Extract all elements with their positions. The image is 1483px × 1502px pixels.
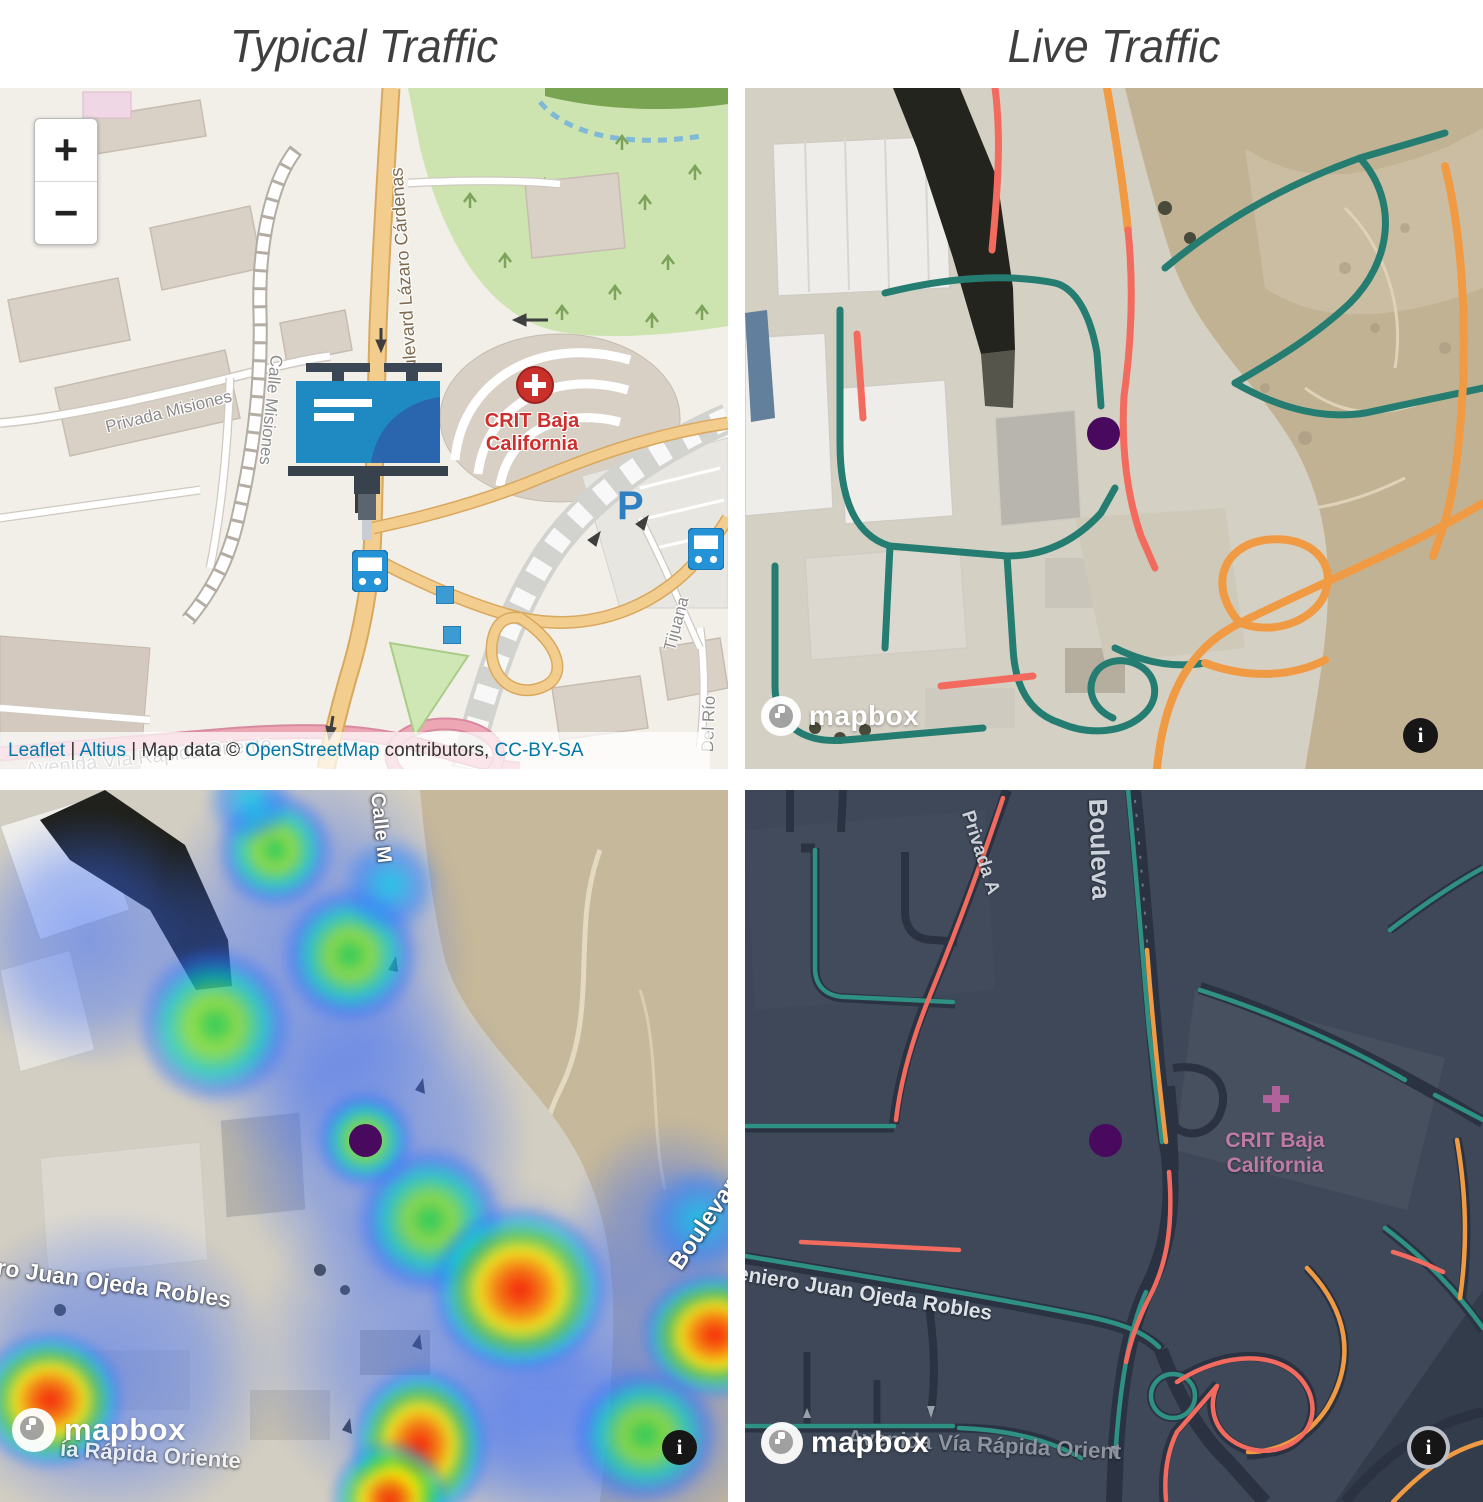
zoom-control: + − xyxy=(34,118,98,245)
map-attribution: Leaflet | Altius | Map data © OpenStreet… xyxy=(0,732,710,769)
altius-link[interactable]: Altius xyxy=(80,740,126,761)
street-label-boulevard: Bouleva xyxy=(1082,798,1117,900)
attribution-info-icon[interactable]: i xyxy=(1407,1426,1450,1469)
leaflet-link[interactable]: Leaflet xyxy=(8,740,65,761)
live-traffic-title: Live Traffic xyxy=(760,6,1468,86)
transit-stop-icon[interactable] xyxy=(436,586,454,604)
location-marker-dot[interactable] xyxy=(1087,417,1120,450)
attrib-contributors-text: contributors, xyxy=(385,740,490,761)
location-marker-dot[interactable] xyxy=(349,1124,382,1157)
mapbox-icon xyxy=(761,696,801,736)
license-link[interactable]: CC-BY-SA xyxy=(495,740,584,761)
mapbox-icon xyxy=(761,1422,803,1464)
live-traffic-map-panel[interactable]: mapbox i xyxy=(745,88,1483,769)
mapbox-wordmark: mapbox xyxy=(64,1412,186,1448)
attribution-info-icon[interactable]: i xyxy=(662,1430,697,1465)
bus-stop-icon[interactable] xyxy=(688,528,724,570)
crit-poi-label: CRIT Baja California xyxy=(1200,1128,1350,1178)
parking-icon: P xyxy=(617,484,644,529)
mapbox-icon xyxy=(12,1408,56,1452)
hospital-poi-icon xyxy=(1263,1086,1289,1112)
billboard-marker-icon[interactable] xyxy=(288,353,448,548)
traffic-heatmap-panel[interactable]: ero Juan Ojeda Robles Boulevard Lázaro C… xyxy=(0,790,728,1502)
mapbox-logo[interactable]: mapbox xyxy=(761,1422,929,1464)
attrib-separator: | xyxy=(70,740,75,761)
zoom-out-button[interactable]: − xyxy=(35,182,97,244)
attribution-info-icon[interactable]: i xyxy=(1403,718,1438,753)
zoom-in-button[interactable]: + xyxy=(35,119,97,181)
openstreetmap-link[interactable]: OpenStreetMap xyxy=(245,740,379,761)
mapbox-wordmark: mapbox xyxy=(811,1426,929,1460)
bus-stop-icon[interactable] xyxy=(352,550,388,592)
mapbox-logo[interactable]: mapbox xyxy=(761,696,919,736)
mapbox-wordmark: mapbox xyxy=(809,700,919,732)
location-marker-dot[interactable] xyxy=(1089,1124,1122,1157)
transit-stop-icon[interactable] xyxy=(443,626,461,644)
hospital-poi-icon[interactable] xyxy=(516,366,554,404)
typical-traffic-map-panel[interactable]: CRIT Baja California P Privada Misiones … xyxy=(0,88,728,769)
typical-traffic-title: Typical Traffic xyxy=(15,6,714,86)
traffic-comparison-page: Typical Traffic Live Traffic xyxy=(0,0,1483,1502)
mapbox-logo[interactable]: mapbox xyxy=(12,1408,186,1452)
attrib-mapdata-text: | Map data © xyxy=(131,740,240,761)
live-traffic-dark-map-panel[interactable]: Privada A Bouleva CRIT Baja California e… xyxy=(745,790,1483,1502)
crit-poi-label: CRIT Baja California xyxy=(462,410,602,456)
